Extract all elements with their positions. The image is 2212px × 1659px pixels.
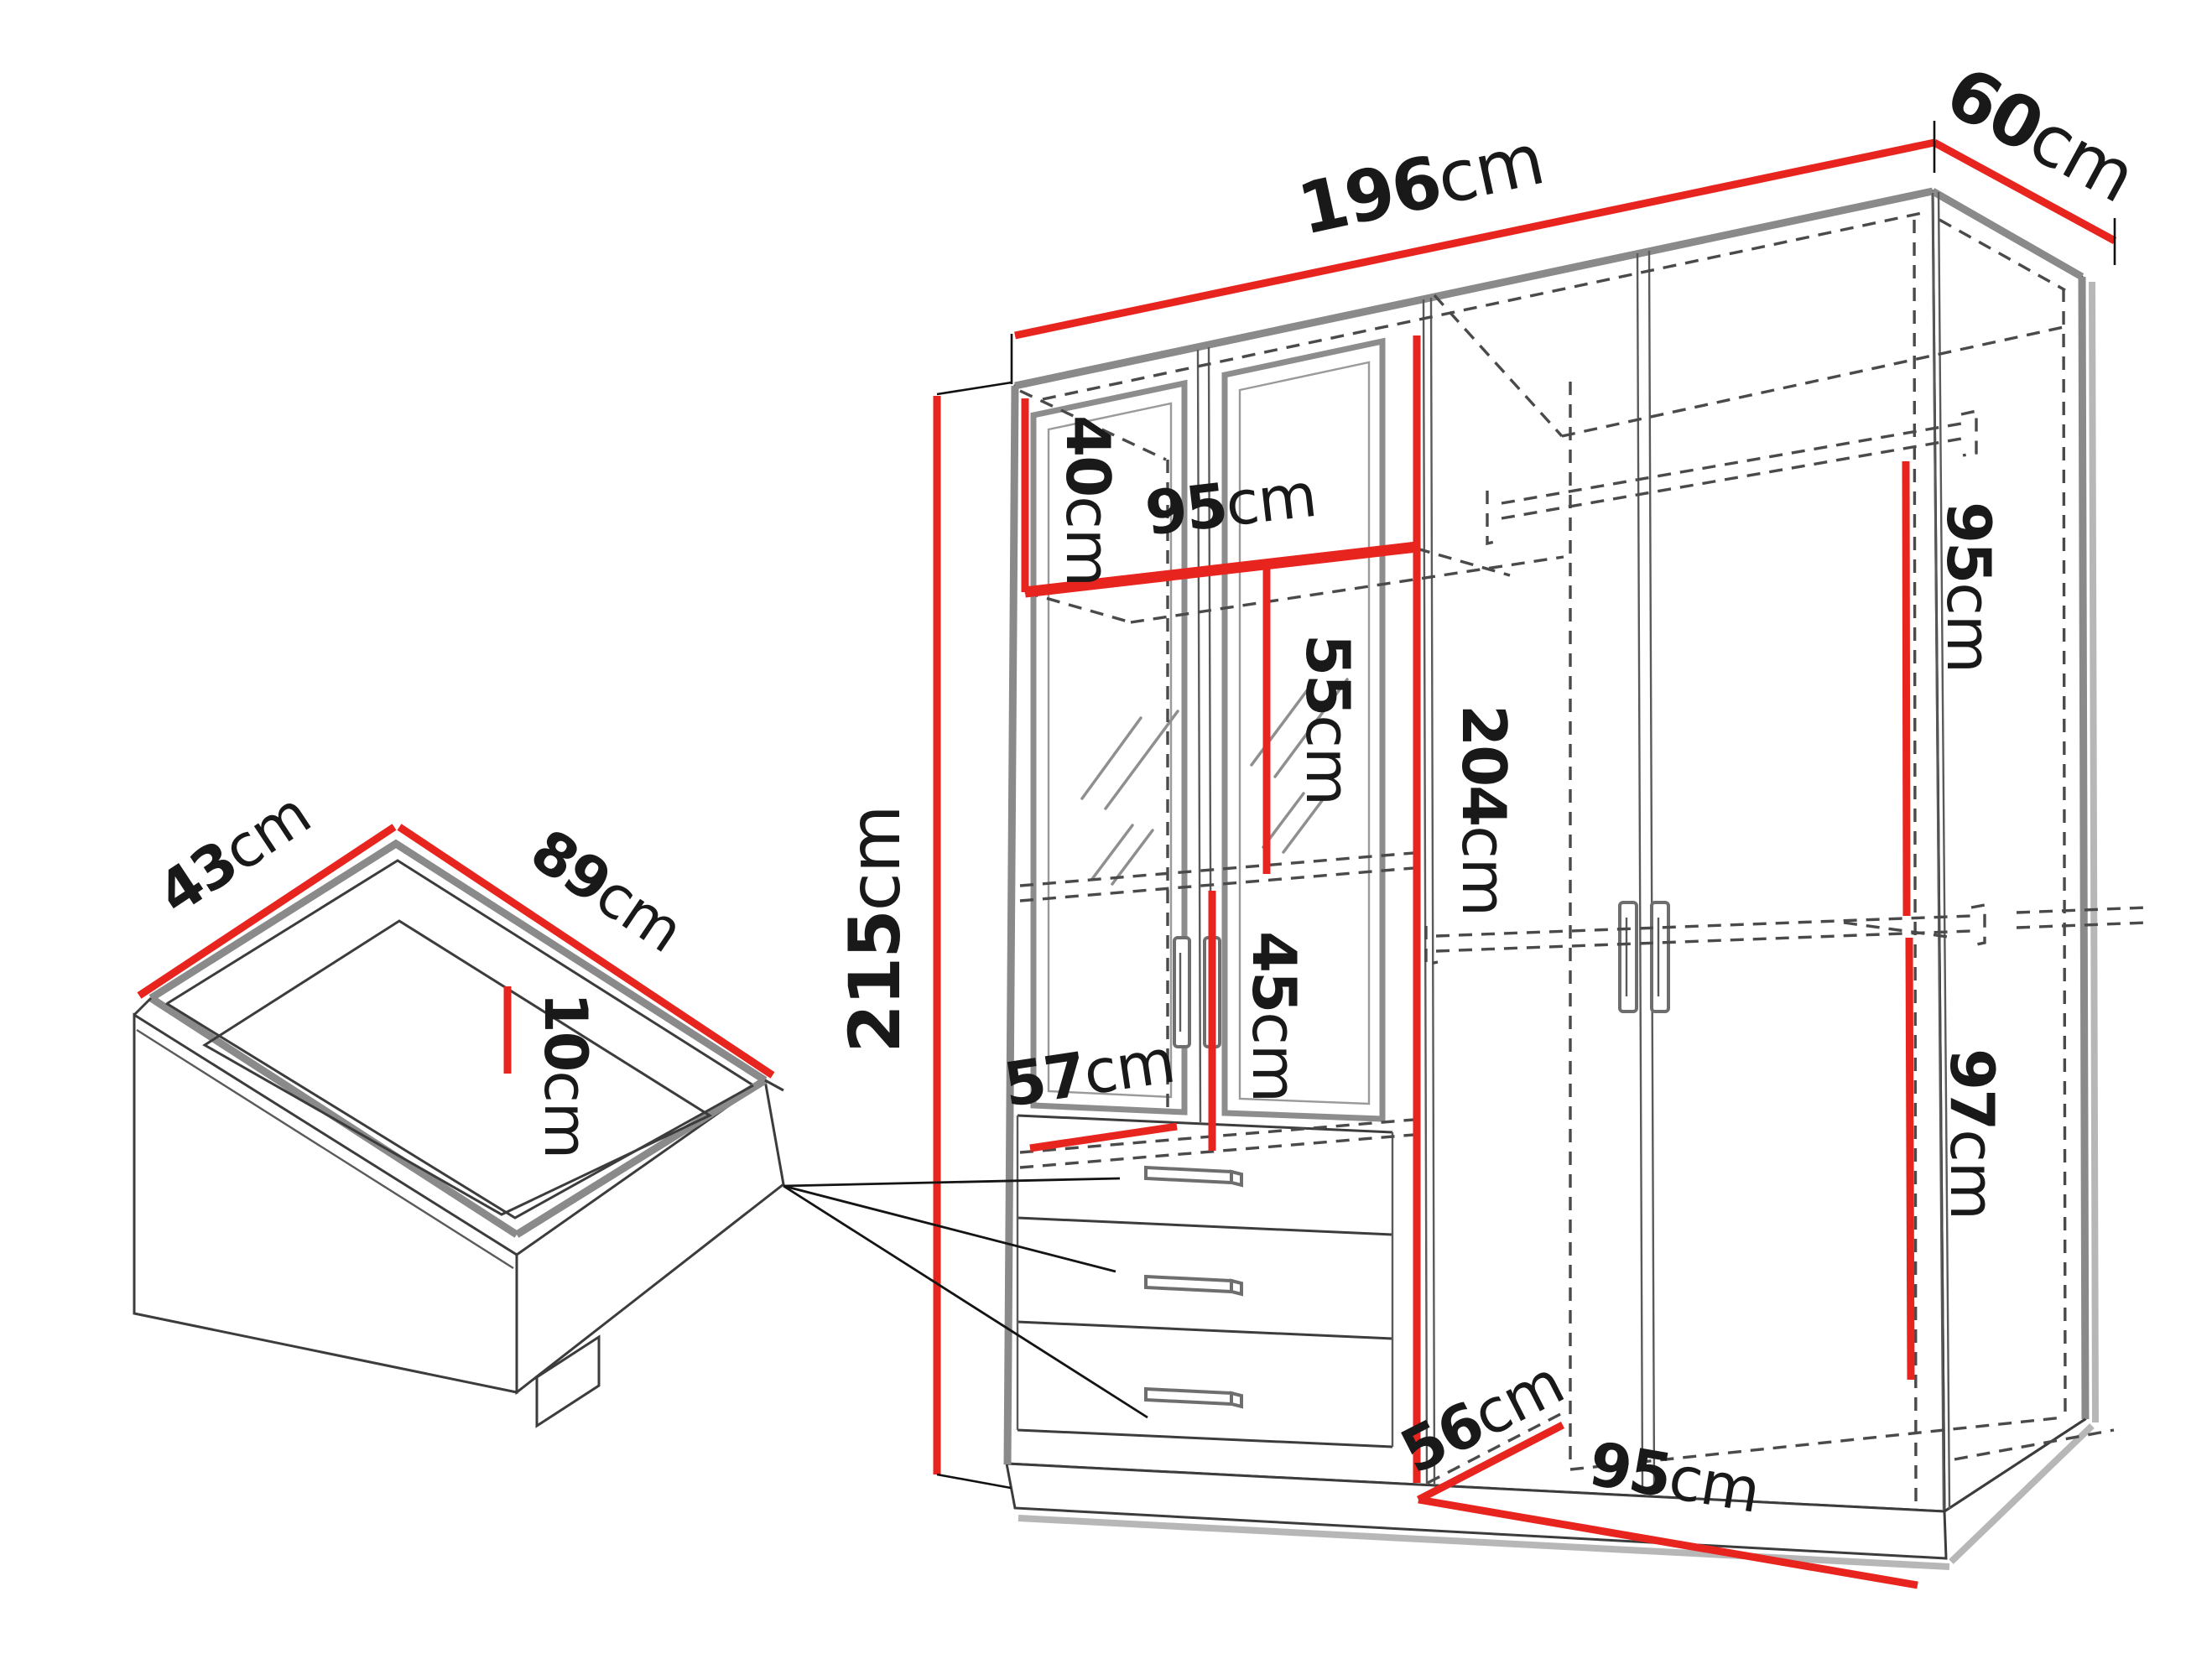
dim-label-right-upper-height: 95cm: [1934, 502, 2004, 673]
dim-label-mirror-section-height: 55cm: [1293, 634, 1363, 805]
drawer-detail: 43cm 89cm 10cm: [134, 779, 783, 1426]
dim-label-depth: 60cm: [1933, 50, 2148, 218]
dim-line-right-lower-97: [1909, 938, 1911, 1380]
diagram-canvas: 196cm 60cm 215cm 40cm 95cm 55cm 45cm 204…: [0, 0, 2212, 1659]
dim-label-drawer-height: 10cm: [531, 992, 600, 1158]
dim-label-interior-height: 204cm: [1449, 705, 1519, 916]
drawer-front-panel: [134, 1015, 517, 1392]
dim-label-lower-section-height: 45cm: [1239, 931, 1309, 1102]
handle-right-left: [1620, 902, 1637, 1012]
dim-line-right-upper-95: [1906, 461, 1907, 916]
dim-label-height: 215cm: [834, 805, 916, 1053]
handle-mirror-left: [1174, 938, 1189, 1047]
handle-right-right: [1652, 902, 1668, 1012]
dim-label-right-lower-height: 97cm: [1937, 1048, 2007, 1220]
wardrobe-body: [1007, 191, 2095, 1567]
wardrobe-dimension-diagram: 196cm 60cm 215cm 40cm 95cm 55cm 45cm 204…: [0, 0, 2212, 1659]
dim-label-top-shelf-height: 40cm: [1053, 415, 1123, 586]
